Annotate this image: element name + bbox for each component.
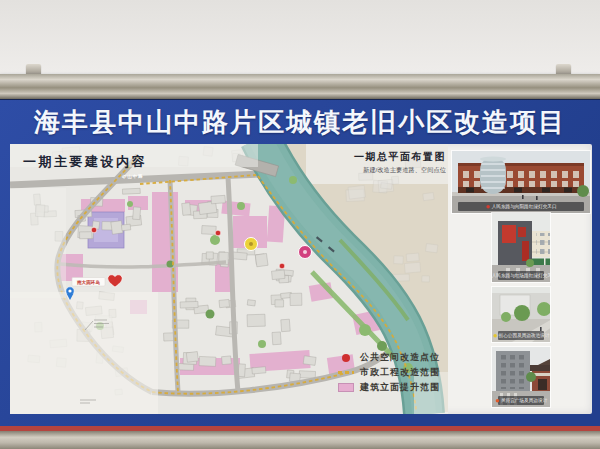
rendering-photo-column: 人民东路与向阳路红绿灯交叉口 xyxy=(452,151,590,423)
content-panel: 南大圆环岛 中山中路 一期主要建设内容 一期总平面布置图 新建/改造主要道路、空… xyxy=(10,144,592,414)
road-label: 中山中路 xyxy=(122,174,144,180)
plan-title: 一期总平面布置图 xyxy=(326,150,446,164)
svg-text:南大圆环岛: 南大圆环岛 xyxy=(76,279,100,286)
map-legend: 公共空间改造点位 市政工程改造范围 建筑立面提升范围 xyxy=(337,352,440,393)
photo-street-palace: 灵符宫广场及周边设计 xyxy=(492,347,550,407)
dashed-line-icon xyxy=(337,371,354,374)
orange-dot-icon xyxy=(495,399,498,402)
legend-item-facade: 建筑立面提升范围 xyxy=(337,382,440,393)
legend-item-public-space: 公共空间改造点位 xyxy=(337,352,440,363)
board-header: 海丰县中山中路片区城镇老旧小区改造项目 xyxy=(0,100,600,144)
plan-subtitle: 新建/改造主要道路、空间点位 xyxy=(352,166,446,175)
metal-frame-top xyxy=(0,74,600,99)
yellow-dot-icon xyxy=(493,334,496,337)
red-dot-icon xyxy=(337,354,354,362)
photo-caption: 街心公园及周边改造设计 xyxy=(498,331,544,340)
pink-area-icon xyxy=(337,383,354,392)
poi-label: 南大圆环岛 xyxy=(72,278,105,287)
photo-park-plaza: 街心公园及周边改造设计 xyxy=(492,287,550,342)
board-title: 海丰县中山中路片区城镇老旧小区改造项目 xyxy=(34,105,566,140)
node-marker-yellow xyxy=(245,238,258,251)
metal-frame-bottom xyxy=(0,431,600,449)
information-board-photo: 海丰县中山中路片区城镇老旧小区改造项目 xyxy=(0,0,600,449)
legend-item-municipal-works: 市政工程改造范围 xyxy=(337,367,440,378)
section-title: 一期主要建设内容 xyxy=(23,153,147,171)
photo-caption: 人民东路与红场路红绿灯交叉口 xyxy=(498,271,544,280)
display-board: 海丰县中山中路片区城镇老旧小区改造项目 xyxy=(0,99,600,427)
photo-intersection-2: 人民东路与红场路红绿灯交叉口 xyxy=(492,213,550,282)
node-marker-magenta xyxy=(299,246,312,259)
plan-note: 一期总平面布置图 新建/改造主要道路、空间点位 xyxy=(326,150,446,177)
red-dot-icon xyxy=(486,205,489,208)
photo-caption: 灵符宫广场及周边设计 xyxy=(498,396,544,405)
photo-intersection-1: 人民东路与向阳路红绿灯交叉口 xyxy=(452,151,590,213)
photo-caption: 人民东路与向阳路红绿灯交叉口 xyxy=(458,202,584,211)
wall-background xyxy=(0,0,600,78)
